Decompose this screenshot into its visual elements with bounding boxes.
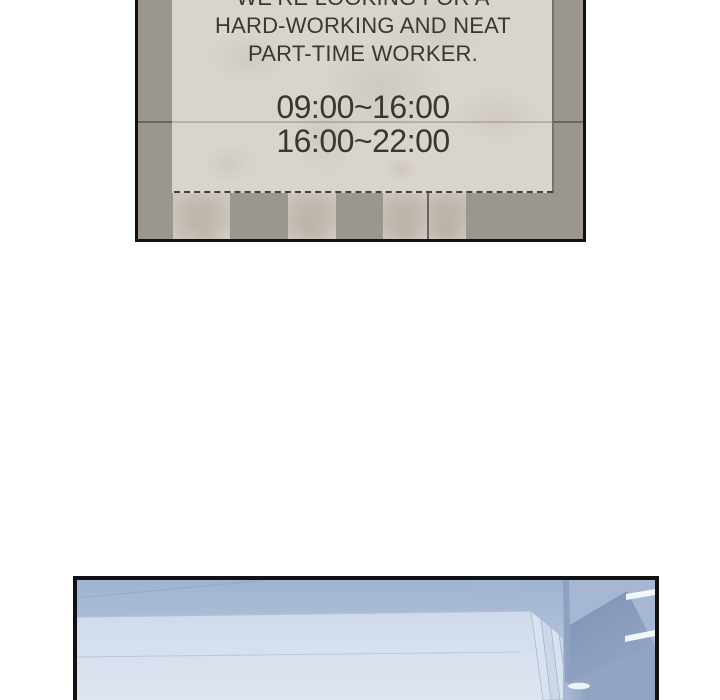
tear-tab <box>383 193 427 239</box>
comic-panel-bottom <box>73 576 659 700</box>
tear-tab <box>288 193 336 239</box>
notice-shift-times: 09:00~16:00 16:00~22:00 <box>172 90 554 158</box>
notice-headline-line1: WE’RE LOOKING FOR A <box>172 0 554 12</box>
comic-page: WE’RE LOOKING FOR A HARD-WORKING AND NEA… <box>0 0 720 700</box>
tear-tab <box>429 193 466 239</box>
store-interior-scene <box>77 580 655 700</box>
tear-tab <box>173 193 230 239</box>
shelf-top-surface <box>77 611 543 700</box>
paper-seam-line <box>172 121 554 123</box>
help-wanted-notice: WE’RE LOOKING FOR A HARD-WORKING AND NEA… <box>172 0 554 193</box>
tear-tab-cut-line <box>427 193 429 239</box>
notice-shift-1: 09:00~16:00 <box>172 90 554 124</box>
notice-headline-line3: PART-TIME WORKER. <box>172 40 554 68</box>
paper-edge-shadow <box>552 0 554 193</box>
far-fixture <box>491 580 519 615</box>
notice-shift-2: 16:00~22:00 <box>172 124 554 158</box>
notice-headline-line2: HARD-WORKING AND NEAT <box>172 12 554 40</box>
cylinder-top-rim <box>568 683 590 690</box>
comic-panel-top: WE’RE LOOKING FOR A HARD-WORKING AND NEA… <box>135 0 586 242</box>
notice-headline: WE’RE LOOKING FOR A HARD-WORKING AND NEA… <box>172 0 554 68</box>
tear-off-dashed-line <box>174 191 553 193</box>
